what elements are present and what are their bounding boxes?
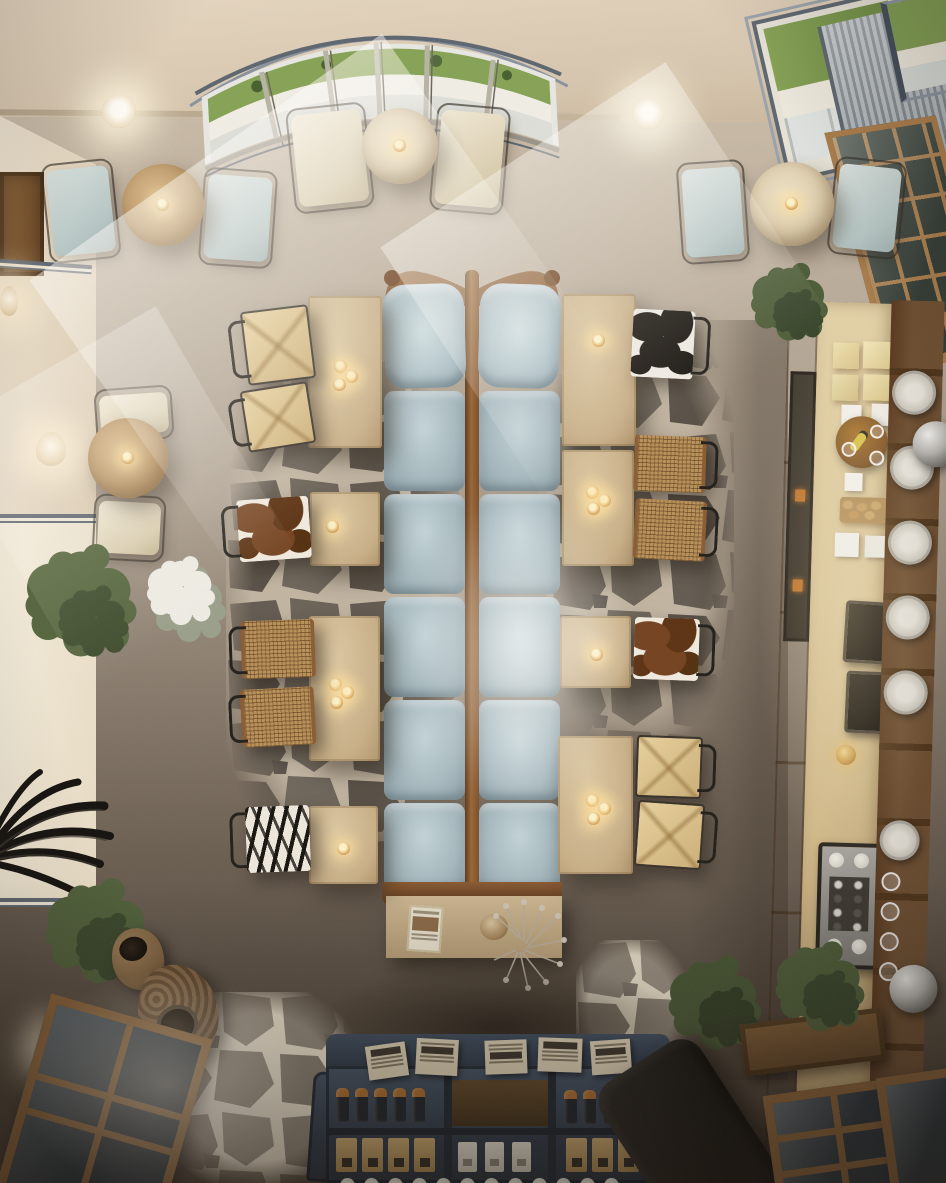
rattan-chair	[240, 619, 316, 680]
plate-stack	[883, 670, 928, 715]
cowhide-brown-chair	[236, 496, 312, 563]
dining-table	[562, 450, 634, 566]
ceiling-light	[102, 94, 136, 128]
fridge-display	[795, 489, 805, 501]
olive-tree	[6, 520, 156, 685]
restaurant-render: Top-down 3D render of a rustic restauran…	[0, 0, 946, 1183]
dining-table	[308, 296, 382, 448]
banquette-right-cushions	[479, 284, 560, 904]
bistro-chair-cream	[290, 109, 369, 208]
dining-table	[558, 736, 633, 874]
bar-tree	[729, 249, 850, 356]
newspaper	[537, 1037, 582, 1073]
dining-table	[309, 806, 378, 884]
woven-chair	[634, 800, 705, 871]
plate-stack	[879, 820, 920, 861]
newspaper	[365, 1041, 409, 1080]
glass	[841, 442, 856, 457]
dining-table	[310, 492, 380, 566]
hydrangea	[135, 528, 235, 668]
cowhide-brown-chair	[633, 617, 700, 681]
plate-stack	[885, 595, 930, 640]
woven-chair	[635, 735, 703, 799]
plate-stack	[887, 520, 932, 565]
white-box	[834, 532, 859, 557]
rattan-chair	[632, 498, 707, 562]
bistro-chair-blue	[832, 163, 902, 253]
newspaper	[484, 1039, 527, 1074]
cabinet-post	[548, 1066, 556, 1183]
bistro-table	[362, 108, 438, 184]
newspaper	[415, 1038, 459, 1076]
bistro-chair-cream	[434, 109, 506, 208]
host-console	[386, 896, 562, 958]
ceiling-light	[632, 98, 664, 130]
pastry-tray	[839, 497, 888, 524]
mirror-sphere	[889, 964, 938, 1013]
rattan-chair	[633, 435, 707, 493]
bistro-table	[88, 418, 168, 498]
zebra-chair	[245, 805, 311, 873]
plate-stack	[891, 370, 936, 415]
woven-chair	[240, 304, 317, 386]
woven-chair	[240, 381, 317, 453]
wine-glass	[880, 902, 900, 922]
napkin-stack	[832, 374, 859, 401]
bistro-table	[750, 162, 834, 246]
dining-table	[562, 294, 636, 446]
dining-table	[560, 616, 631, 688]
wine-glass	[881, 872, 901, 892]
cowhide-bw-chair	[630, 308, 695, 379]
wine-bottle-row	[336, 1088, 425, 1122]
bistro-chair-blue	[46, 165, 117, 257]
pot-mouth	[117, 934, 150, 964]
espresso-cup	[854, 853, 869, 868]
portafilter-grid	[828, 876, 869, 931]
dining-table	[309, 616, 380, 761]
ledge-trim	[0, 514, 96, 518]
wall-sconce	[0, 286, 18, 316]
napkin-stack	[863, 341, 891, 369]
package-row	[336, 1138, 435, 1172]
glass	[870, 424, 884, 438]
cabinet-post	[444, 1066, 452, 1183]
white-dish	[844, 473, 862, 491]
cabinet-middle-bay	[452, 1080, 548, 1126]
banquette	[376, 260, 568, 908]
fridge-display	[792, 579, 802, 591]
service-tray	[835, 415, 888, 468]
napkin-stack	[863, 374, 890, 401]
bistro-chair-blue	[681, 166, 745, 258]
menu-book	[406, 905, 443, 953]
jar-row	[340, 1178, 619, 1183]
wall-sconce	[36, 432, 66, 466]
rattan-chair	[240, 686, 317, 748]
espresso-cup	[829, 852, 844, 867]
banquette-spine	[465, 270, 479, 904]
package-row-white	[458, 1142, 531, 1172]
bistro-chair-blue	[203, 174, 273, 262]
shrub	[752, 928, 888, 1048]
banquette-left-cushions	[384, 284, 465, 904]
bistro-table	[122, 164, 204, 246]
